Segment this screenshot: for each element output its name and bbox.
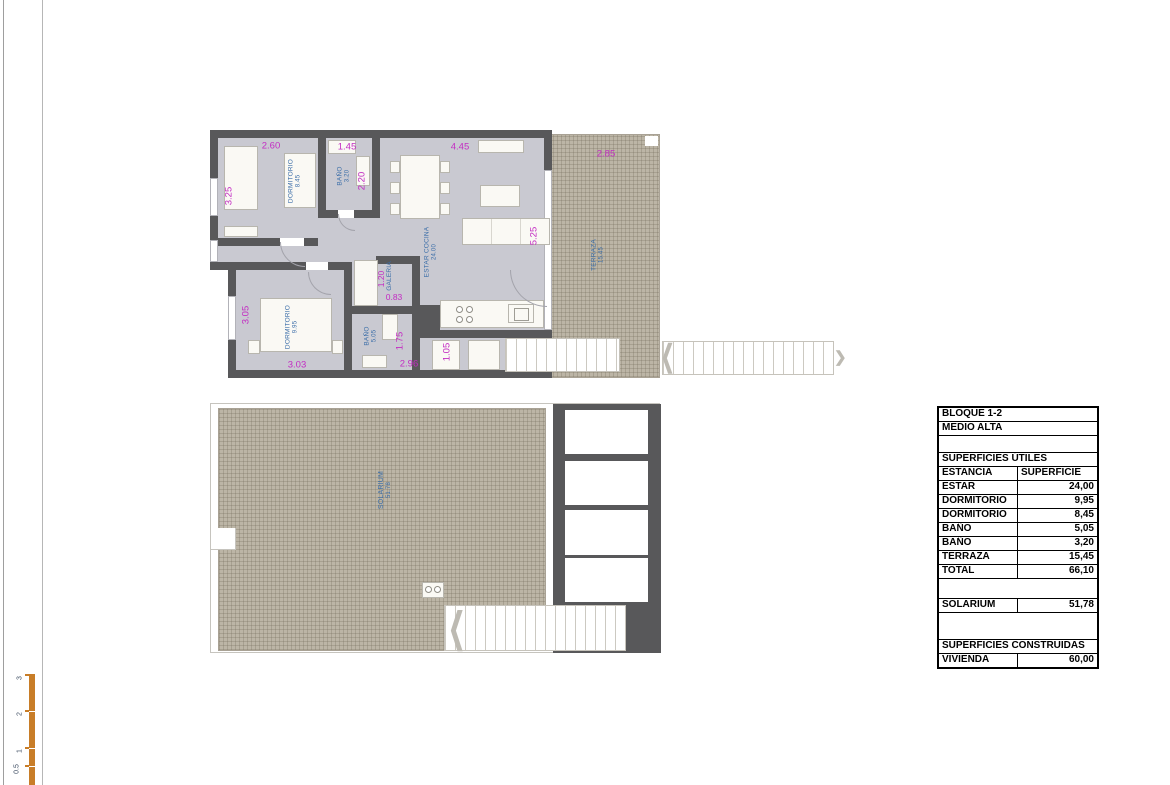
hob-burner bbox=[466, 316, 473, 323]
window bbox=[228, 296, 236, 340]
surface-table: BLOQUE 1-2 MEDIO ALTA SUPERFICIES ÚTILES… bbox=[937, 406, 1099, 669]
table-cell: MEDIO ALTA bbox=[939, 422, 1097, 435]
dimension-label: 2.96 bbox=[400, 359, 419, 370]
table-cell: DORMITORIO bbox=[939, 509, 1018, 522]
room-label-dormitorio-1: DORMITORIO 8.45 bbox=[288, 159, 303, 203]
table-cell: 5,05 bbox=[1018, 523, 1097, 536]
room-area: 3.20 bbox=[344, 166, 351, 185]
table-cell: 51,78 bbox=[1018, 599, 1097, 612]
rooflight-dome bbox=[425, 586, 432, 593]
room-label-dormitorio-2: DORMITORIO 9.95 bbox=[285, 305, 300, 349]
table-cell: 60,00 bbox=[1018, 654, 1097, 667]
table-row: DORMITORIO 9,95 bbox=[939, 494, 1097, 508]
table-cell: BAÑO bbox=[939, 537, 1018, 550]
table-cell: SOLARIUM bbox=[939, 599, 1018, 612]
sheet-border-line bbox=[42, 0, 43, 785]
wall bbox=[372, 138, 380, 216]
hob-burner bbox=[456, 306, 463, 313]
window bbox=[210, 178, 218, 216]
chair bbox=[390, 182, 400, 194]
window bbox=[210, 240, 218, 262]
table-row-spacer bbox=[939, 612, 1097, 639]
dimension-label: 1.45 bbox=[338, 142, 357, 153]
scale-label: 3 bbox=[17, 676, 24, 680]
wall bbox=[210, 262, 238, 270]
table-row: ESTAR COCINA 24,00 bbox=[939, 480, 1097, 494]
dimension-label: 5.25 bbox=[529, 227, 540, 246]
scale-label: 2 bbox=[17, 712, 24, 716]
dimension-label: 4.45 bbox=[451, 142, 470, 153]
room-name: SOLARIUM bbox=[378, 471, 386, 509]
table-cell: TOTAL bbox=[939, 565, 1018, 578]
coffee-table bbox=[480, 185, 520, 207]
room-name: TERRAZA bbox=[591, 239, 599, 271]
scale-label: 0.5 bbox=[14, 764, 21, 774]
nightstand bbox=[248, 340, 260, 354]
dimension-label: 1.75 bbox=[395, 332, 406, 351]
table-row: TOTAL 66,10 bbox=[939, 564, 1097, 578]
stair-arrow-left-icon: ❮ bbox=[661, 340, 675, 374]
table-cell: 15,45 bbox=[1018, 551, 1097, 564]
room-area: 8.45 bbox=[295, 159, 302, 203]
table-cell: SUPERFICIES ÚTILES bbox=[939, 453, 1097, 466]
wall bbox=[228, 270, 236, 296]
dimension-label: 1.20 bbox=[376, 271, 386, 288]
dimension-label: 3.03 bbox=[288, 360, 307, 371]
terraza-corner-notch bbox=[645, 136, 658, 146]
core-opening bbox=[565, 461, 648, 505]
dimension-label: 0.83 bbox=[386, 292, 403, 302]
table-cell: 9,95 bbox=[1018, 495, 1097, 508]
chair bbox=[440, 182, 450, 194]
table-row: SUPERFICIES ÚTILES bbox=[939, 452, 1097, 466]
wall bbox=[344, 306, 420, 314]
wall bbox=[210, 130, 552, 138]
table-row: MEDIO ALTA bbox=[939, 421, 1097, 435]
core-opening bbox=[565, 410, 648, 454]
wall bbox=[420, 330, 552, 338]
stair-arrow-left-icon: ❮ bbox=[448, 606, 465, 650]
sideboard bbox=[478, 140, 524, 153]
scale-bar bbox=[29, 674, 35, 785]
table-cell: BAÑO bbox=[939, 523, 1018, 536]
chair bbox=[390, 161, 400, 173]
room-name: GALERIA bbox=[386, 261, 394, 291]
chair bbox=[440, 161, 450, 173]
table-row-spacer bbox=[939, 435, 1097, 452]
room-name: BAÑO bbox=[364, 326, 372, 345]
dimension-label: 3.05 bbox=[241, 306, 252, 325]
table-cell: 66,10 bbox=[1018, 565, 1097, 578]
scale-label: 1 bbox=[17, 749, 24, 753]
table-row: ESTANCIA SUPERFICIE bbox=[939, 466, 1097, 480]
chair bbox=[440, 203, 450, 215]
dimension-label: 1.05 bbox=[442, 343, 453, 362]
door-opening bbox=[306, 262, 328, 270]
stair-external bbox=[662, 341, 834, 375]
room-name: BAÑO bbox=[337, 166, 345, 185]
nightstand bbox=[332, 340, 343, 354]
table-cell: VIVIENDA bbox=[939, 654, 1018, 667]
table-cell: SUPERFICIE bbox=[1018, 467, 1097, 480]
table-cell: BLOQUE 1-2 bbox=[939, 408, 1097, 421]
room-name: DORMITORIO bbox=[285, 305, 293, 349]
room-area: 15.45 bbox=[598, 239, 605, 271]
room-name: DORMITORIO bbox=[288, 159, 296, 203]
table-row: BLOQUE 1-2 bbox=[939, 408, 1097, 421]
room-label-terraza: TERRAZA 15.45 bbox=[591, 239, 606, 271]
dimension-label: 3.25 bbox=[224, 187, 235, 206]
hob-burner bbox=[456, 316, 463, 323]
toilet bbox=[362, 355, 387, 368]
dimension-label: 2.85 bbox=[597, 149, 616, 160]
stair-arrow-right-icon: ❯ bbox=[834, 349, 847, 367]
dimension-label: 2.60 bbox=[262, 141, 281, 152]
wall bbox=[544, 130, 552, 170]
room-label-bano-1: BAÑO 3.20 bbox=[337, 166, 352, 185]
scale-segment-divider bbox=[29, 711, 35, 712]
table-cell: ESTAR COCINA bbox=[939, 481, 1018, 494]
wall bbox=[228, 370, 552, 378]
wall bbox=[318, 138, 326, 216]
sink-basin bbox=[514, 308, 529, 321]
table-cell: SUPERFICIES CONSTRUIDAS bbox=[939, 640, 1097, 653]
table-cell: 24,00 bbox=[1018, 481, 1097, 494]
scale-tick bbox=[25, 674, 29, 676]
scale-segment-divider bbox=[29, 766, 35, 767]
washing-machine bbox=[354, 260, 378, 306]
core-opening bbox=[565, 510, 648, 555]
wall bbox=[210, 216, 218, 240]
room-label-bano-2: BAÑO 5.05 bbox=[364, 326, 379, 345]
stair-internal bbox=[505, 338, 620, 372]
table-row: SUPERFICIES CONSTRUIDAS bbox=[939, 639, 1097, 653]
table-cell: DORMITORIO bbox=[939, 495, 1018, 508]
storage-room bbox=[468, 340, 500, 370]
table-row: TERRAZA 15,45 bbox=[939, 550, 1097, 564]
table-cell: 3,20 bbox=[1018, 537, 1097, 550]
table-row-spacer bbox=[939, 578, 1097, 598]
exterior-cutout bbox=[210, 270, 228, 378]
table-row: VIVIENDA 60,00 bbox=[939, 653, 1097, 667]
chair bbox=[390, 203, 400, 215]
rooflight-dome bbox=[434, 586, 441, 593]
table-row: DORMITORIO 8,45 bbox=[939, 508, 1097, 522]
table-row: BAÑO 3,20 bbox=[939, 536, 1097, 550]
room-area: 24.00 bbox=[431, 227, 438, 278]
room-area: 5.05 bbox=[371, 326, 378, 345]
table-cell: TERRAZA bbox=[939, 551, 1018, 564]
table-cell: 8,45 bbox=[1018, 509, 1097, 522]
room-name: ESTAR COCINA bbox=[424, 227, 432, 278]
core-opening bbox=[565, 558, 648, 602]
scale-segment-divider bbox=[29, 748, 35, 749]
wall bbox=[412, 305, 440, 333]
table-row: BAÑO 5,05 bbox=[939, 522, 1097, 536]
room-label-solarium: SOLARIUM 51.78 bbox=[378, 471, 394, 509]
floor-plan-solarium: ❮ SOLARIUM 51.78 bbox=[210, 403, 662, 655]
table-row: SOLARIUM 51,78 bbox=[939, 598, 1097, 612]
room-area: 51.78 bbox=[387, 471, 394, 509]
table-cell: ESTANCIA bbox=[939, 467, 1018, 480]
room-label-estar-cocina: ESTAR COCINA 24.00 bbox=[424, 227, 439, 278]
room-area: 9.95 bbox=[292, 305, 299, 349]
hob-burner bbox=[466, 306, 473, 313]
wall bbox=[344, 262, 352, 370]
sheet-border-line bbox=[3, 0, 4, 785]
floor-plan-apartment: 2.60 1.45 4.45 2.85 3.25 2.20 5.25 3.05 … bbox=[210, 130, 662, 378]
dresser bbox=[224, 226, 258, 237]
stair-solarium bbox=[444, 605, 626, 651]
solarium-notch bbox=[211, 528, 236, 550]
wall bbox=[210, 130, 218, 178]
drawing-sheet: 2.60 1.45 4.45 2.85 3.25 2.20 5.25 3.05 … bbox=[0, 0, 1170, 785]
dimension-label: 2.20 bbox=[357, 172, 368, 191]
room-label-galeria: GALERIA bbox=[386, 261, 394, 291]
dining-table bbox=[400, 155, 440, 219]
